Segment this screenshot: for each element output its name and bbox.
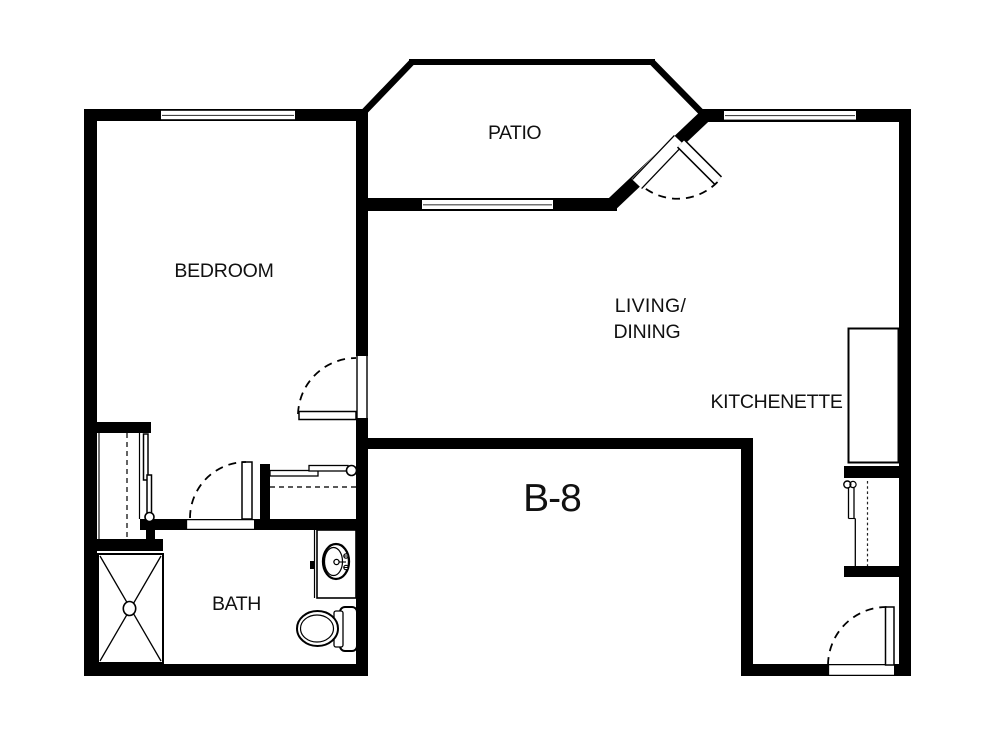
svg-text:BATH: BATH xyxy=(212,593,261,615)
svg-text:DINING: DINING xyxy=(613,321,680,343)
svg-text:BEDROOM: BEDROOM xyxy=(174,260,273,282)
svg-text:PATIO: PATIO xyxy=(488,122,541,144)
svg-text:KITCHENETTE: KITCHENETTE xyxy=(710,391,842,413)
svg-text:B-8: B-8 xyxy=(523,477,581,520)
svg-text:LIVING/: LIVING/ xyxy=(615,295,687,317)
